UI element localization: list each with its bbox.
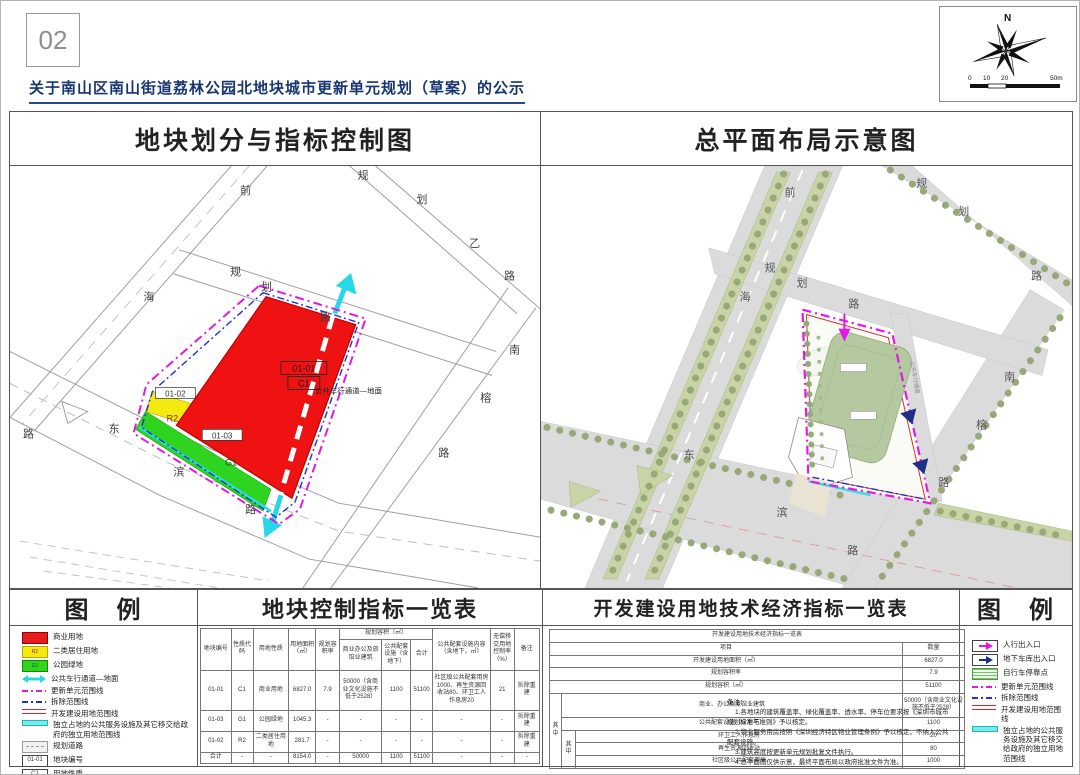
residential-swatch: R2 bbox=[22, 646, 48, 658]
map-panels: 地块划分与指标控制图 bbox=[9, 111, 1073, 589]
svg-text:榕: 榕 bbox=[976, 417, 987, 431]
compass-panel: N 0 10 20 50m bbox=[939, 6, 1077, 102]
svg-text:榕: 榕 bbox=[480, 390, 491, 404]
independent-land-swatch bbox=[22, 720, 48, 726]
cell: 01-03 bbox=[201, 711, 232, 732]
renewal-boundary-swatch bbox=[972, 686, 996, 688]
header-cell: 项目 bbox=[550, 642, 903, 655]
block-division-map-svg: 01-01 C1 01-02 R2 01-03 G1 公共车行通道—地面 前 bbox=[10, 166, 540, 588]
legend-item-planned-road: 规划道路 bbox=[22, 741, 189, 753]
svg-text:前: 前 bbox=[785, 185, 796, 199]
cell: 7.9 bbox=[316, 670, 340, 710]
header-cell: 数量 bbox=[902, 642, 964, 655]
svg-text:划: 划 bbox=[261, 281, 272, 294]
note-line: 3.建筑高度按更新单元规划批复文件执行。 bbox=[727, 748, 953, 758]
cell: - bbox=[433, 732, 491, 753]
header-cell: 性质代码 bbox=[231, 629, 253, 671]
block-01-02-use: R2 bbox=[167, 413, 178, 423]
scale-10: 10 bbox=[983, 75, 991, 82]
development-boundary-swatch bbox=[22, 709, 46, 714]
cell: 公园绿地 bbox=[253, 711, 289, 732]
cell: 规划容积（㎡） bbox=[550, 681, 903, 694]
control-indicator-section: 地块控制指标一览表 地块编号 性质代码 用地性质 用地面积（㎡） 规划容积率 规… bbox=[197, 590, 542, 766]
svg-text:划: 划 bbox=[797, 277, 808, 290]
legend-right-section: 图 例 人行出入口 地下车库出入口 自行车停靠点 更新单元范围线 bbox=[959, 590, 1072, 766]
header-cell: 公共配套设施内容（含地下，㎡） bbox=[433, 629, 491, 671]
legend-left-title: 图 例 bbox=[10, 590, 197, 626]
cell: - bbox=[490, 732, 514, 753]
svg-text:南: 南 bbox=[1004, 370, 1015, 383]
cell: - bbox=[316, 711, 340, 732]
svg-text:路: 路 bbox=[320, 311, 331, 324]
svg-text:路: 路 bbox=[245, 503, 256, 516]
cell: - bbox=[316, 752, 340, 763]
tech-economic-body: 开发建设用地技术经济指标一览表 项目 数量 开发建设用地面积（㎡） 6827.0… bbox=[543, 626, 959, 766]
right-panel-title: 总平面布局示意图 bbox=[541, 112, 1072, 166]
panel-master-plan: 总平面布局示意图 bbox=[541, 112, 1072, 588]
legend-item-demolition-boundary: 拆除范围线 bbox=[972, 693, 1064, 702]
channel-annotation: 公共车行通道—地面 bbox=[315, 385, 383, 395]
cell: 拆除重建 bbox=[514, 711, 539, 732]
compass-rose-graphic: N 0 10 20 50m bbox=[940, 7, 1076, 101]
block-code-swatch: 01-01 bbox=[22, 755, 48, 767]
page-number-box: 02 bbox=[26, 13, 80, 67]
block-01-02-code: 01-02 bbox=[165, 389, 186, 398]
svg-text:规: 规 bbox=[230, 265, 241, 279]
cell: 6827.0 bbox=[902, 655, 964, 668]
cell: - bbox=[490, 752, 514, 763]
cell: 01-01 bbox=[201, 670, 232, 710]
block-01-01-use: C1 bbox=[298, 378, 309, 388]
cell: 51100 bbox=[411, 752, 433, 763]
cell: R2 bbox=[231, 732, 253, 753]
svg-text:南: 南 bbox=[509, 344, 520, 357]
svg-text:海: 海 bbox=[740, 290, 751, 304]
cell: - bbox=[382, 732, 411, 753]
cell: C1 bbox=[231, 670, 253, 710]
demolition-boundary-swatch bbox=[972, 697, 996, 699]
north-label: N bbox=[1004, 13, 1011, 24]
legend-item-commercial: 商业用地 bbox=[22, 632, 189, 644]
legend-item-independent-land: 独立占地的公共服务设施及其它移交给政府的独立用地范围线 bbox=[972, 726, 1064, 764]
cell: 合计 bbox=[201, 752, 232, 763]
master-plan-map-svg: 公共车行通道 前 海 规 划 路 规 划 路 南 榕 路 东 滨 bbox=[541, 166, 1072, 588]
legend-item-park: G1 公园绿地 bbox=[22, 660, 189, 672]
header-cell: 地块编号 bbox=[201, 629, 232, 671]
svg-text:路: 路 bbox=[848, 298, 859, 311]
cell: - bbox=[433, 711, 491, 732]
cell: 51100 bbox=[902, 681, 964, 694]
planned-road-swatch bbox=[22, 741, 48, 753]
legend-item-vehicle-channel: 公共车行通道—地面 bbox=[22, 674, 189, 684]
cell: G1 bbox=[231, 711, 253, 732]
public-notice-sheet: 02 关于南山区南山街道荔林公园北地块城市更新单元规划（草案）的公示 N 0 1… bbox=[0, 0, 1080, 775]
commercial-swatch bbox=[22, 632, 48, 644]
cell: - bbox=[231, 752, 253, 763]
among-cell: 其中 bbox=[562, 730, 576, 768]
header-cell: 合计 bbox=[411, 640, 433, 671]
cell: 281.7 bbox=[289, 732, 316, 753]
table-row: 规划容积（㎡） 51100 bbox=[550, 681, 965, 694]
cell: - bbox=[411, 732, 433, 753]
panel-block-division: 地块划分与指标控制图 bbox=[10, 112, 541, 588]
master-plan-map: 公共车行通道 前 海 规 划 路 规 划 路 南 榕 路 东 滨 bbox=[541, 166, 1072, 588]
cell: 开发建设用地面积（㎡） bbox=[550, 655, 903, 668]
scale-bar: 0 10 20 50m bbox=[968, 75, 1063, 88]
renewal-boundary-swatch bbox=[22, 690, 46, 692]
header-cell: 商业办公及旅馆业建筑 bbox=[339, 640, 381, 671]
svg-text:路: 路 bbox=[938, 476, 949, 489]
table-row: 开发建设用地面积（㎡） 6827.0 bbox=[550, 655, 965, 668]
svg-text:路: 路 bbox=[1031, 270, 1042, 283]
svg-text:规: 规 bbox=[765, 261, 776, 275]
legend-item-residential: R2 二类居住用地 bbox=[22, 646, 189, 658]
land-use-swatch: C1 bbox=[22, 769, 48, 775]
block-01-03-code: 01-03 bbox=[212, 431, 233, 440]
cell: 01-02 bbox=[201, 732, 232, 753]
scale-0: 0 bbox=[968, 75, 972, 82]
left-panel-title: 地块划分与指标控制图 bbox=[10, 112, 540, 166]
bike-parking-swatch bbox=[972, 668, 998, 680]
svg-text:规: 规 bbox=[358, 168, 369, 182]
cell: 50000（含商业文化设施不低于2528） bbox=[339, 670, 381, 710]
garage-entrance-swatch bbox=[972, 654, 998, 666]
demolition-boundary-swatch bbox=[22, 701, 46, 703]
table-row-total: 合计- -8154.0 -50000 110051100 -- - bbox=[201, 752, 540, 763]
table-row: 01-03G1 公园绿地1045.3 -- -- -- 拆除重建 bbox=[201, 711, 540, 732]
header-cell: 备注 bbox=[514, 629, 539, 671]
table-row: 01-01C1 商业用地6827.0 7.950000（含商业文化设施不低于25… bbox=[201, 670, 540, 710]
note-line: 2.物业服务用房按照《深圳经济特区物业管理条例》予以核定，不纳入公共配套设施。 bbox=[727, 728, 953, 748]
cell: 51100 bbox=[411, 670, 433, 710]
header-cell: 规划容积率 bbox=[316, 629, 340, 671]
legend-item-land-use: C1 用地性质 bbox=[22, 769, 189, 775]
cell: - bbox=[339, 711, 381, 732]
cell: - bbox=[382, 711, 411, 732]
legend-item-garage-entrance: 地下车库出入口 bbox=[972, 654, 1064, 666]
cell: - bbox=[411, 711, 433, 732]
document-title: 关于南山区南山街道荔林公园北地块城市更新单元规划（草案）的公示 bbox=[29, 77, 525, 104]
header-cell: 用地性质 bbox=[253, 629, 289, 671]
control-indicator-title: 地块控制指标一览表 bbox=[198, 590, 542, 626]
svg-text:路: 路 bbox=[438, 446, 449, 459]
legend-item-bike-parking: 自行车停靠点 bbox=[972, 668, 1064, 680]
cell: 商业用地 bbox=[253, 670, 289, 710]
header-row: 项目 数量 bbox=[550, 642, 965, 655]
control-indicator-table-wrap: 地块编号 性质代码 用地性质 用地面积（㎡） 规划容积率 规划容积（㎡） 公共配… bbox=[198, 626, 542, 766]
legend-left-section: 图 例 商业用地 R2 二类居住用地 G1 公园绿地 公共车行通道—地面 bbox=[10, 590, 197, 766]
svg-text:路: 路 bbox=[847, 544, 858, 557]
cell: 二类居住用地 bbox=[253, 732, 289, 753]
cell: 拆除重建 bbox=[514, 732, 539, 753]
legend-item-demolition-boundary: 拆除范围线 bbox=[22, 697, 189, 706]
svg-text:前: 前 bbox=[240, 183, 251, 197]
cell: 1100 bbox=[382, 670, 411, 710]
scale-50m: 50m bbox=[1050, 75, 1063, 82]
header-cell: 公共配套设施（含地下） bbox=[382, 640, 411, 671]
cell: 拆除重建 bbox=[514, 670, 539, 710]
legend-item-independent-land: 独立占地的公共服务设施及其它移交给政府的独立用地范围线 bbox=[22, 720, 189, 739]
cell: 规划容积率 bbox=[550, 668, 903, 681]
among-cell: 其中 bbox=[550, 693, 562, 768]
vehicle-channel-swatch bbox=[22, 674, 46, 684]
legend-right-body: 人行出入口 地下车库出入口 自行车停靠点 更新单元范围线 拆除范围线 开发 bbox=[960, 626, 1072, 767]
table-row: 01-02R2 二类居住用地281.7 -- -- -- 拆除重建 bbox=[201, 732, 540, 753]
svg-text:规: 规 bbox=[916, 176, 927, 190]
cell: 社区级公共配套用房1000、再生资源回收站80、环卫工人作息房20 bbox=[433, 670, 491, 710]
cell: - bbox=[514, 752, 539, 763]
svg-text:海: 海 bbox=[143, 290, 154, 304]
cell: 1100 bbox=[382, 752, 411, 763]
tech-economic-title: 开发建设用地技术经济指标一览表 bbox=[543, 590, 959, 626]
svg-text:滨: 滨 bbox=[777, 505, 788, 519]
cell: 1045.3 bbox=[289, 711, 316, 732]
notes-title: 备注： bbox=[727, 698, 953, 708]
header-row-1: 地块编号 性质代码 用地性质 用地面积（㎡） 规划容积率 规划容积（㎡） 公共配… bbox=[201, 629, 540, 640]
block-division-map: 01-01 C1 01-02 R2 01-03 G1 公共车行通道—地面 前 bbox=[10, 166, 540, 588]
svg-text:滨: 滨 bbox=[173, 464, 184, 478]
table-title-row: 开发建设用地技术经济指标一览表 bbox=[550, 630, 965, 643]
scale-20: 20 bbox=[1001, 75, 1009, 82]
cell: - bbox=[433, 752, 491, 763]
cell: 7.9 bbox=[902, 668, 964, 681]
cell: 50000 bbox=[339, 752, 381, 763]
cell: - bbox=[253, 752, 289, 763]
notes-block: 备注： 1.各地块的建筑覆盖率、绿化覆盖率、透水率、停车位要求按《深圳市城市规划… bbox=[727, 698, 953, 768]
bottom-band: 图 例 商业用地 R2 二类居住用地 G1 公园绿地 公共车行通道—地面 bbox=[9, 589, 1073, 767]
svg-text:划: 划 bbox=[416, 193, 427, 206]
cell: - bbox=[339, 732, 381, 753]
note-line: 1.各地块的建筑覆盖率、绿化覆盖率、透水率、停车位要求按《深圳市城市规划标准与准… bbox=[727, 708, 953, 728]
legend-item-renewal-boundary: 更新单元范围线 bbox=[972, 682, 1064, 691]
svg-text:划: 划 bbox=[958, 205, 969, 218]
legend-item-pedestrian-entrance: 人行出入口 bbox=[972, 640, 1064, 652]
header-cell: 无偿移交用地控制率（%） bbox=[490, 629, 514, 671]
header-cell: 用地面积（㎡） bbox=[289, 629, 316, 671]
legend-item-development-boundary: 开发建设用地范围线 bbox=[22, 709, 189, 718]
note-line: 4.总平面图仅供示意，最终平面布局以政府批准文件为准。 bbox=[727, 758, 953, 768]
page-number: 02 bbox=[39, 25, 68, 56]
header-cell-group: 规划容积（㎡） bbox=[339, 629, 432, 640]
control-indicator-table: 地块编号 性质代码 用地性质 用地面积（㎡） 规划容积率 规划容积（㎡） 公共配… bbox=[200, 628, 540, 764]
pedestrian-entrance-swatch bbox=[972, 640, 998, 652]
svg-text:路: 路 bbox=[504, 270, 515, 283]
svg-text:东: 东 bbox=[684, 448, 695, 461]
tech-economic-section: 开发建设用地技术经济指标一览表 开发建设用地技术经济指标一览表 项目 数量 开发… bbox=[542, 590, 959, 766]
cell: - bbox=[316, 732, 340, 753]
table-row: 规划容积率 7.9 bbox=[550, 668, 965, 681]
development-boundary-swatch bbox=[972, 705, 996, 710]
cell: 8154.0 bbox=[289, 752, 316, 763]
cell: - bbox=[490, 711, 514, 732]
svg-text:路: 路 bbox=[23, 427, 34, 440]
park-swatch: G1 bbox=[22, 660, 48, 672]
legend-right-title: 图 例 bbox=[960, 590, 1072, 626]
block-01-03-use: G1 bbox=[225, 457, 237, 467]
svg-text:东: 东 bbox=[109, 422, 120, 435]
cell: 6827.0 bbox=[289, 670, 316, 710]
legend-item-development-boundary: 开发建设用地范围线 bbox=[972, 705, 1064, 724]
legend-item-block-code: 01-01 地块编号 bbox=[22, 755, 189, 767]
cell: 21 bbox=[490, 670, 514, 710]
inner-title: 开发建设用地技术经济指标一览表 bbox=[550, 630, 965, 643]
legend-item-renewal-boundary: 更新单元范围线 bbox=[22, 686, 189, 695]
svg-text:乙: 乙 bbox=[469, 237, 480, 250]
independent-land-swatch bbox=[972, 726, 998, 732]
block-01-01-code: 01-01 bbox=[292, 364, 315, 374]
legend-left-body: 商业用地 R2 二类居住用地 G1 公园绿地 公共车行通道—地面 更新单元范围线 bbox=[10, 626, 197, 775]
